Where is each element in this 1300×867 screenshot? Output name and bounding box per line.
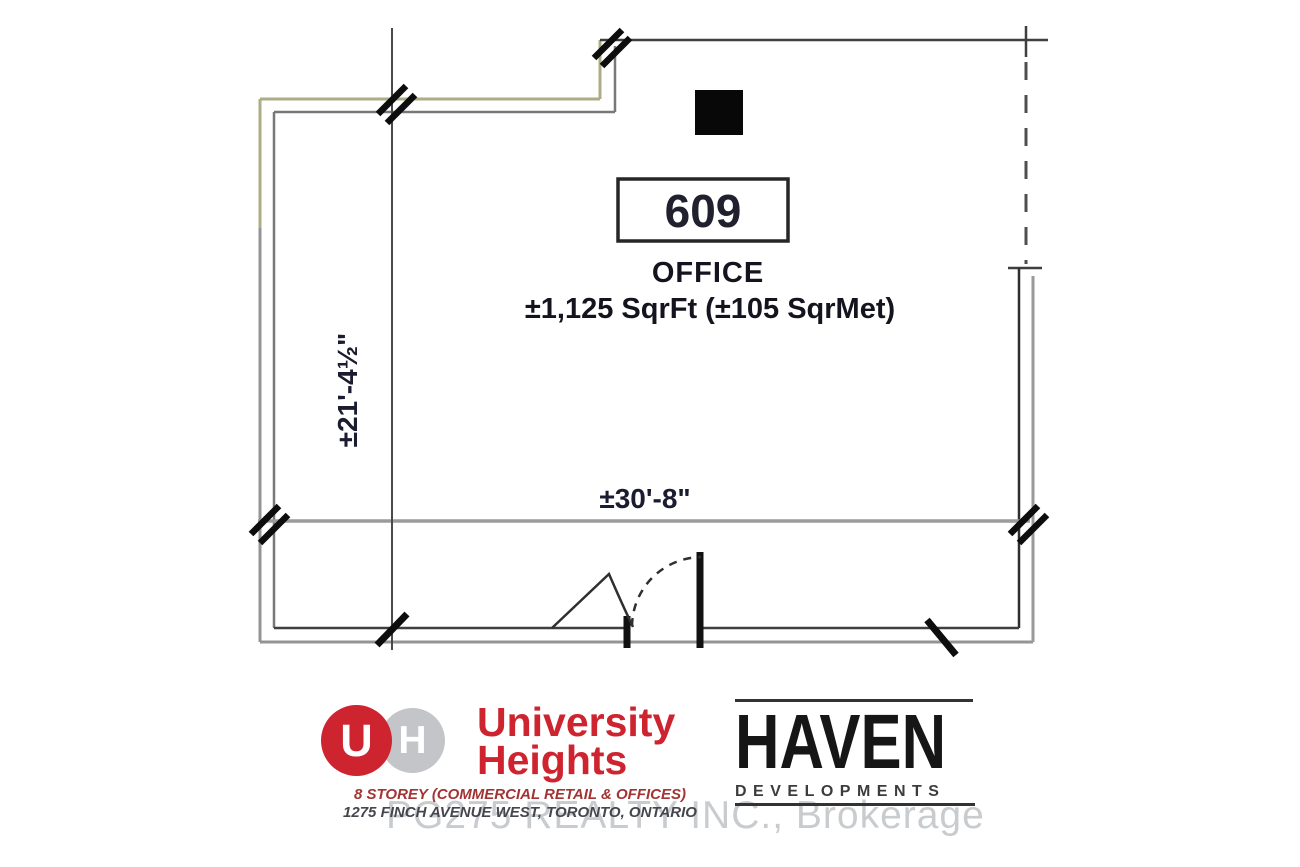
project-storey-line: 8 STOREY (COMMERCIAL RETAIL & OFFICES) (318, 786, 722, 804)
university-heights-logo-u-icon: U (321, 705, 392, 776)
floorplan-page: 609 OFFICE ±1,125 SqrFt (±105 SqrMet) ±3… (0, 0, 1300, 867)
wordmark-line2: Heights (477, 741, 675, 779)
haven-wordmark: HAVEN (735, 706, 927, 778)
door-swing-arc (632, 557, 701, 626)
wall-top-right (600, 26, 1048, 57)
wall-outline-outer (260, 228, 1033, 642)
haven-subtitle: DEVELOPMENTS (735, 783, 975, 801)
project-address-line: 1275 FINCH AVENUE WEST, TORONTO, ONTARIO (318, 804, 722, 822)
haven-bottom-rule (735, 803, 975, 806)
wordmark-line1: University (477, 703, 675, 741)
dimension-tick-marks (251, 30, 1047, 655)
entry-door (552, 552, 701, 648)
wall-outline-inner (274, 46, 615, 628)
column-square (695, 90, 743, 135)
dimension-width-label: ±30'-8" (599, 483, 690, 514)
wall-right (1008, 268, 1042, 642)
logo-letter-h: H (398, 719, 426, 763)
project-description: 8 STOREY (COMMERCIAL RETAIL & OFFICES) 1… (318, 786, 722, 822)
unit-area-label: ±1,125 SqrFt (±105 SqrMet) (525, 293, 895, 325)
logo-letter-u: U (340, 715, 373, 767)
door-leaf (552, 574, 633, 628)
university-heights-wordmark: University Heights (477, 703, 675, 779)
unit-number: 609 (665, 185, 742, 237)
haven-developments-logo: HAVEN DEVELOPMENTS (735, 699, 975, 801)
floor-plan: 609 OFFICE ±1,125 SqrFt (±105 SqrMet) ±3… (0, 0, 1300, 680)
wall-outline-outer-accent (260, 40, 600, 230)
unit-type-label: OFFICE (652, 257, 764, 289)
dimension-height-label: ±21'-4½" (332, 333, 363, 448)
